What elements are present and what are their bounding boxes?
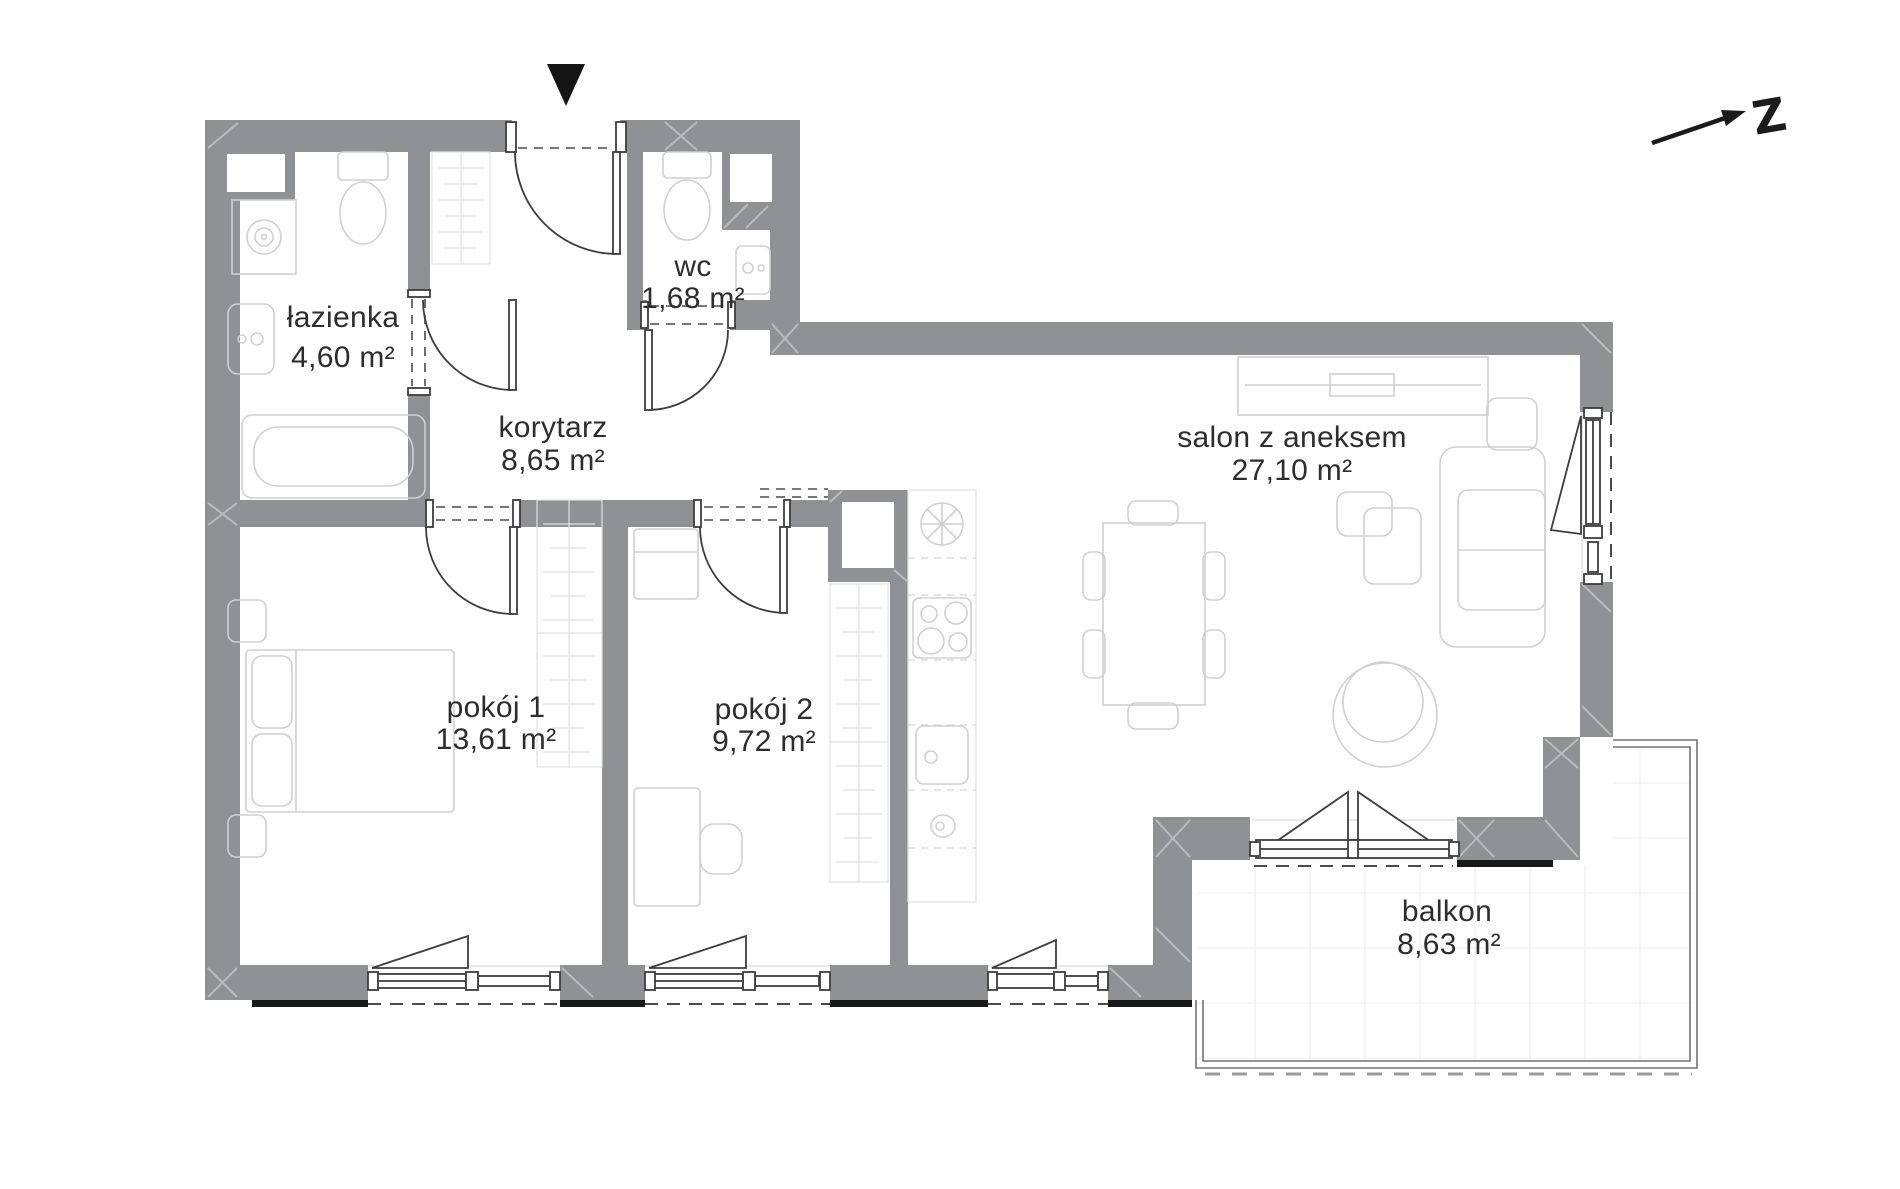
compass-letter: Z: [1748, 87, 1790, 146]
room1-window-tilt: [372, 936, 468, 968]
wall-right-upper: [1580, 322, 1613, 412]
room2-door-leaf: [780, 527, 787, 613]
wc-door-arc: [648, 330, 728, 410]
walls: [205, 120, 1613, 1000]
tv-sideboard: [1238, 357, 1488, 415]
room-label-lazienka: łazienka: [287, 301, 399, 334]
floor-plan-page: Z łazienka 4,60 m² wc 1,68 m² korytarz 8…: [0, 0, 1900, 1189]
room-label-salon: salon z aneksem: [1177, 421, 1407, 454]
kitchen: [908, 490, 976, 902]
room2-wardrobe: [830, 584, 888, 882]
room1-door-arc: [426, 527, 513, 614]
entrance-door: [506, 122, 626, 254]
dining-table: [1083, 501, 1225, 729]
wall-left: [205, 120, 240, 1000]
bathroom-door-arc: [423, 300, 513, 390]
single-bed: [634, 529, 698, 599]
wall-right-lower: [1580, 582, 1613, 737]
room-area-salon: 27,10 m²: [1232, 454, 1353, 487]
compass-arrow-line: [1652, 115, 1734, 143]
room-area-pokoj1: 13,61 m²: [436, 723, 557, 756]
salon-furniture: [1083, 357, 1545, 767]
room2-window-tilt: [649, 936, 746, 968]
wc-door: [641, 302, 735, 410]
wc-door-leaf: [645, 330, 652, 410]
bath-niche: [227, 154, 285, 192]
entrance-door-arc: [515, 152, 617, 254]
corridor-salon-boundary: [760, 489, 828, 497]
room-area-lazienka: 4,60 m²: [291, 341, 395, 374]
kitchen-shaft-niche: [842, 502, 894, 568]
room-label-pokoj1: pokój 1: [447, 691, 546, 724]
room-area-wc: 1,68 m²: [641, 282, 745, 315]
washing-machine-icon: [232, 200, 296, 274]
balcony-door: [1250, 792, 1459, 866]
bathroom-door: [408, 290, 516, 395]
wall-bottom-3: [830, 965, 988, 1000]
salon-south-window: [988, 940, 1108, 1004]
salon-south-window-tilt: [992, 940, 1056, 968]
room-area-korytarz: 8,65 m²: [501, 444, 605, 477]
wc-toilet-icon: [663, 152, 711, 240]
wall-bottom-4: [1108, 965, 1192, 1000]
room-area-pokoj2: 9,72 m²: [712, 725, 816, 758]
compass-arrow-head-icon: [1721, 110, 1746, 126]
entrance-door-post-left: [506, 122, 516, 152]
room2-door: [694, 500, 790, 613]
salon-east-window-tilt: [1551, 416, 1581, 534]
wc-shaft-niche: [730, 154, 772, 202]
wall-bath-corridor-upper: [408, 150, 430, 297]
room1-door-leaf: [510, 527, 517, 614]
kitchen-counter: [908, 490, 976, 902]
wall-salon-top: [797, 322, 1613, 355]
desk: [634, 788, 700, 906]
room2-door-arc: [700, 527, 786, 613]
room1-window: [368, 936, 560, 1004]
desk-chair: [700, 824, 742, 874]
wall-room-divider: [602, 500, 628, 965]
room2-window: [645, 936, 830, 1004]
small-appliance-icon: [931, 815, 955, 837]
corridor-wardrobe: [432, 152, 490, 264]
room-label-pokoj2: pokój 2: [715, 693, 814, 726]
wall-bath-bottom: [205, 500, 432, 527]
sink-icon: [916, 726, 968, 784]
salon-east-window: [1551, 408, 1611, 584]
bathtub-icon: [242, 415, 425, 498]
entrance-door-post-right: [616, 122, 626, 152]
wall-bottom-1: [205, 965, 368, 1000]
bathroom-door-leaf: [509, 300, 516, 390]
room1-furniture: [228, 600, 454, 857]
double-bed: [246, 650, 454, 812]
wall-top-left: [205, 120, 512, 152]
room-label-korytarz: korytarz: [498, 411, 607, 444]
wall-bottom-2: [560, 965, 645, 1000]
sofa: [1440, 447, 1545, 647]
entrance-arrow-icon: [547, 64, 585, 106]
room-label-balkon: balkon: [1402, 895, 1492, 928]
wall-room2-kitchen: [890, 582, 908, 965]
cooktop-icon: [913, 598, 971, 658]
entrance-door-leaf: [613, 152, 620, 254]
fridge-icon: [921, 503, 963, 545]
armchair: [1333, 662, 1437, 767]
room1-door: [426, 500, 520, 614]
compass: Z: [1652, 87, 1790, 146]
room-area-balkon: 8,63 m²: [1397, 928, 1501, 961]
room-label-wc: wc: [673, 250, 711, 283]
floor-plan-svg: Z łazienka 4,60 m² wc 1,68 m² korytarz 8…: [0, 0, 1900, 1189]
toilet-icon: [338, 152, 388, 244]
